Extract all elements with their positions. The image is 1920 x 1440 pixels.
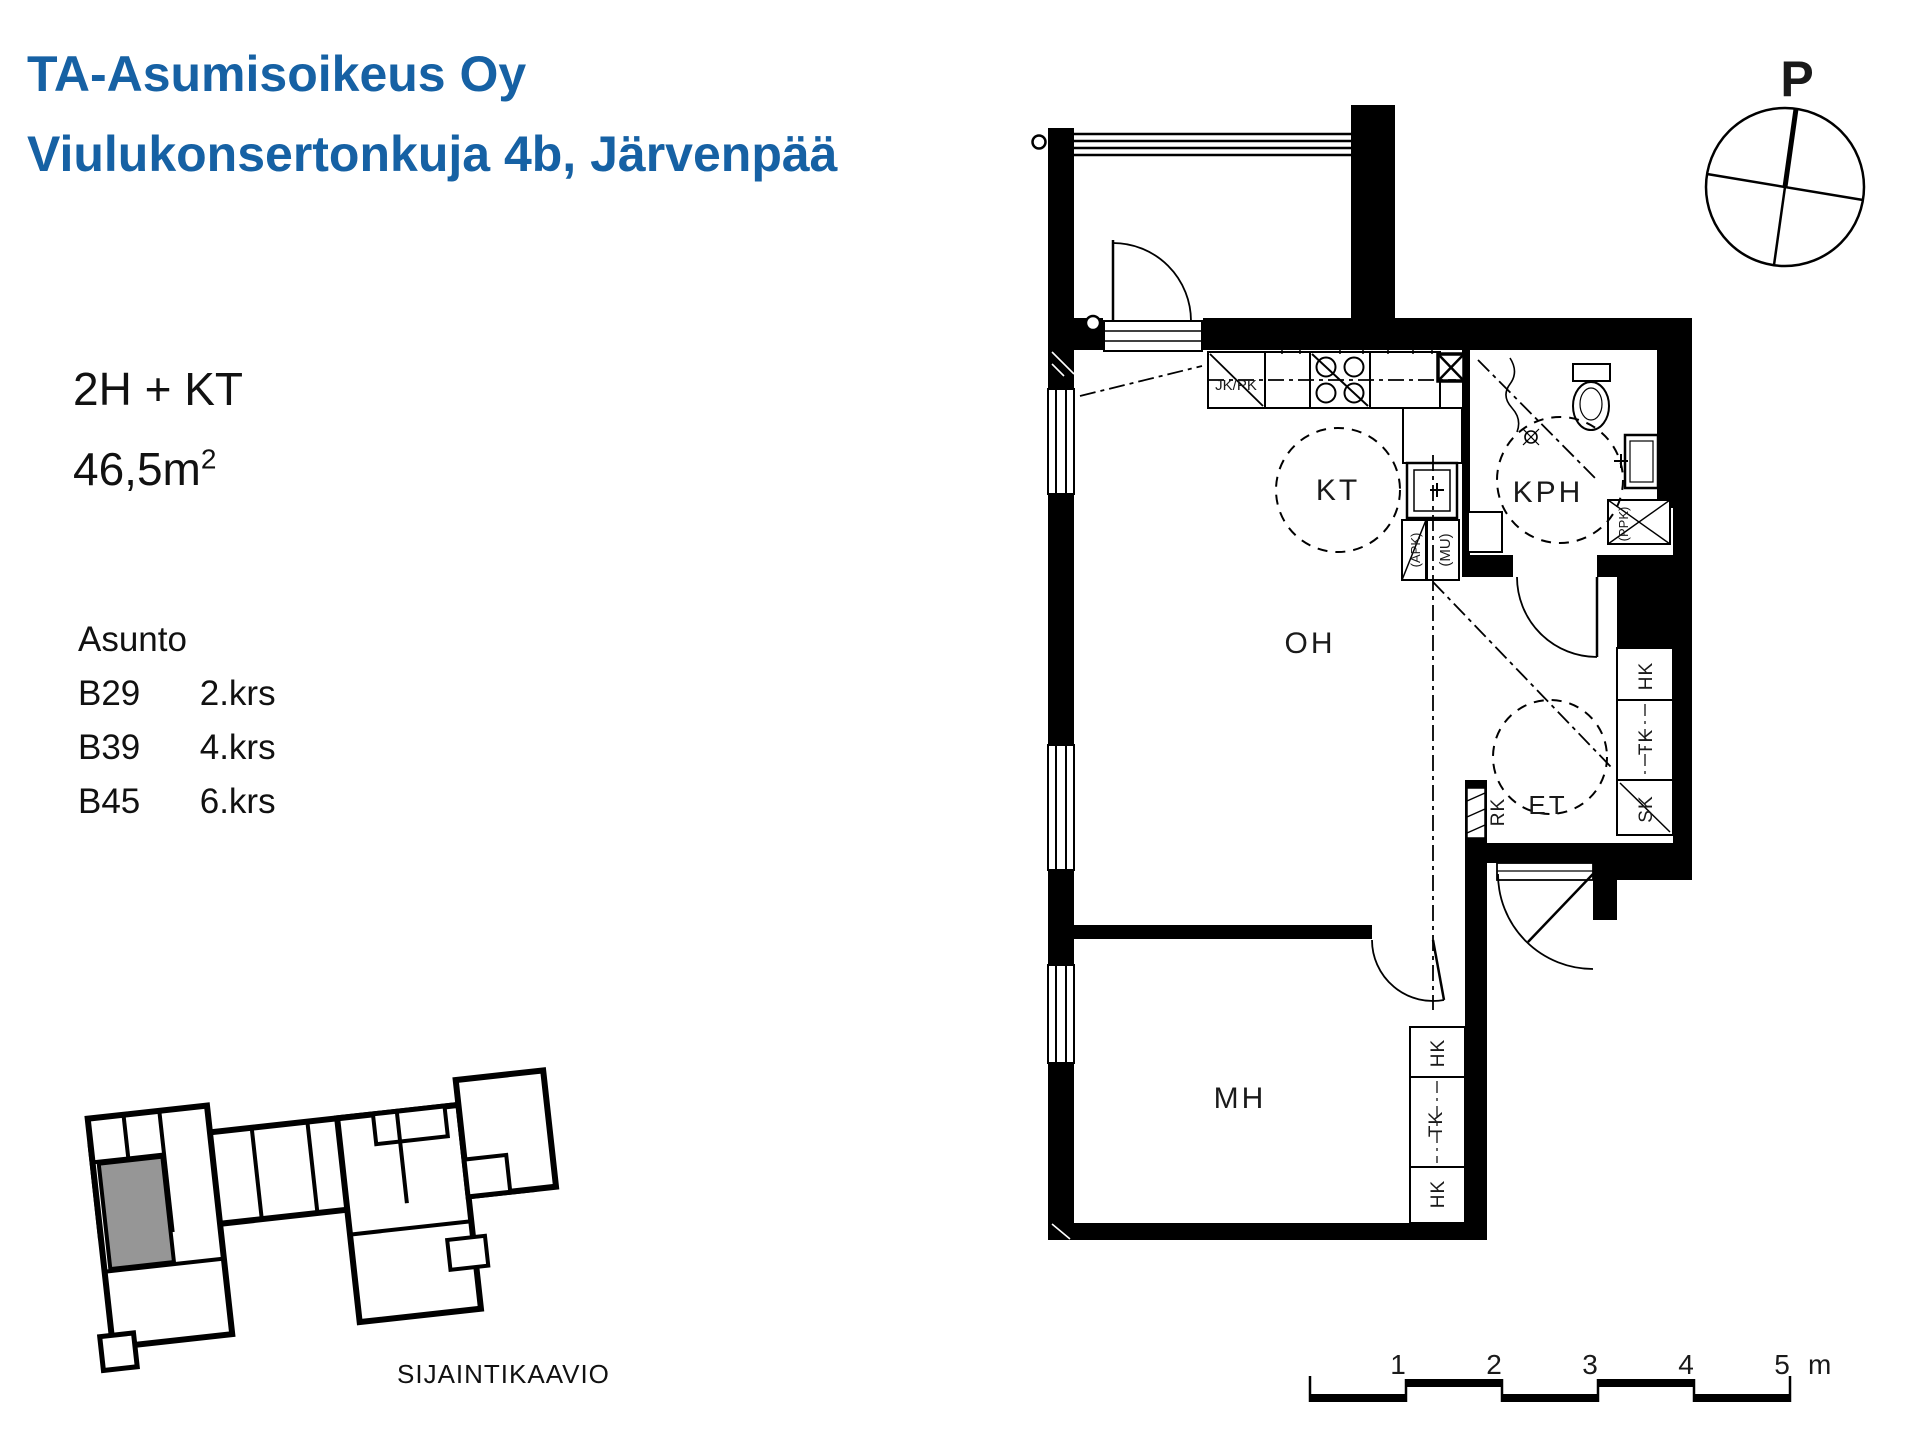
window (1046, 389, 1076, 494)
balcony-railing (1074, 134, 1351, 155)
label-fridge: JK/PK (1215, 377, 1257, 394)
column-symbol (1086, 316, 1100, 330)
label-microwave: (MU) (1437, 533, 1454, 566)
shower-curtain (1506, 358, 1519, 432)
scale-tick-label: 4 (1678, 1349, 1694, 1380)
window (1046, 965, 1076, 1063)
scale-unit-label: m (1808, 1349, 1831, 1380)
room-label-livingroom: OH (1285, 627, 1336, 660)
bathroom-sink (1614, 435, 1658, 488)
scale-tick-label: 5 (1774, 1349, 1790, 1380)
room-label-entry: ET (1528, 790, 1567, 820)
label-dishwasher: (APK) (1408, 533, 1423, 568)
window (1046, 745, 1076, 870)
closet-label: TK (1426, 1111, 1447, 1137)
scale-tick-label: 2 (1486, 1349, 1502, 1380)
scale-bar: 1 2 3 4 5 m (1310, 1349, 1831, 1402)
entrance-door (1497, 863, 1593, 969)
washing-machine-space (1468, 512, 1502, 552)
scale-tick-label: 3 (1582, 1349, 1598, 1380)
bathroom-door (1517, 577, 1597, 657)
kitchen-sink (1407, 463, 1457, 518)
vent-duct-icon (1438, 354, 1464, 381)
electrical-cabinet (1467, 788, 1485, 838)
walls (1048, 105, 1692, 1240)
closet-label: SK (1636, 795, 1657, 822)
closet-label: TK (1636, 729, 1657, 755)
floor-plan-page: TA-Asumisoikeus Oy Viulukonsertonkuja 4b… (0, 0, 1920, 1440)
label-electrical: RK (1488, 798, 1509, 826)
scale-tick-label: 1 (1390, 1349, 1406, 1380)
floor-plan-drawing: KT KPH OH ET MH JK/PK (APK) (MU) (PPK) R… (0, 0, 1920, 1440)
drainpipe-symbol (1033, 136, 1046, 149)
room-label-bedroom: MH (1214, 1082, 1267, 1115)
room-label-kitchen: KT (1316, 474, 1360, 507)
balcony-door (1104, 240, 1202, 351)
closet-label: HK (1428, 1180, 1449, 1208)
highlighted-apartment (99, 1157, 174, 1269)
closet-label: HK (1636, 662, 1657, 690)
floor-drain-icon (1523, 429, 1539, 445)
location-diagram (76, 1068, 571, 1370)
compass-north-label: P (1780, 51, 1813, 107)
compass-icon (1706, 108, 1864, 266)
center-lines (1080, 360, 1612, 1010)
room-label-bathroom: KPH (1513, 476, 1584, 509)
label-laundry: (PPK) (1616, 507, 1631, 542)
closet-label: HK (1428, 1039, 1449, 1067)
